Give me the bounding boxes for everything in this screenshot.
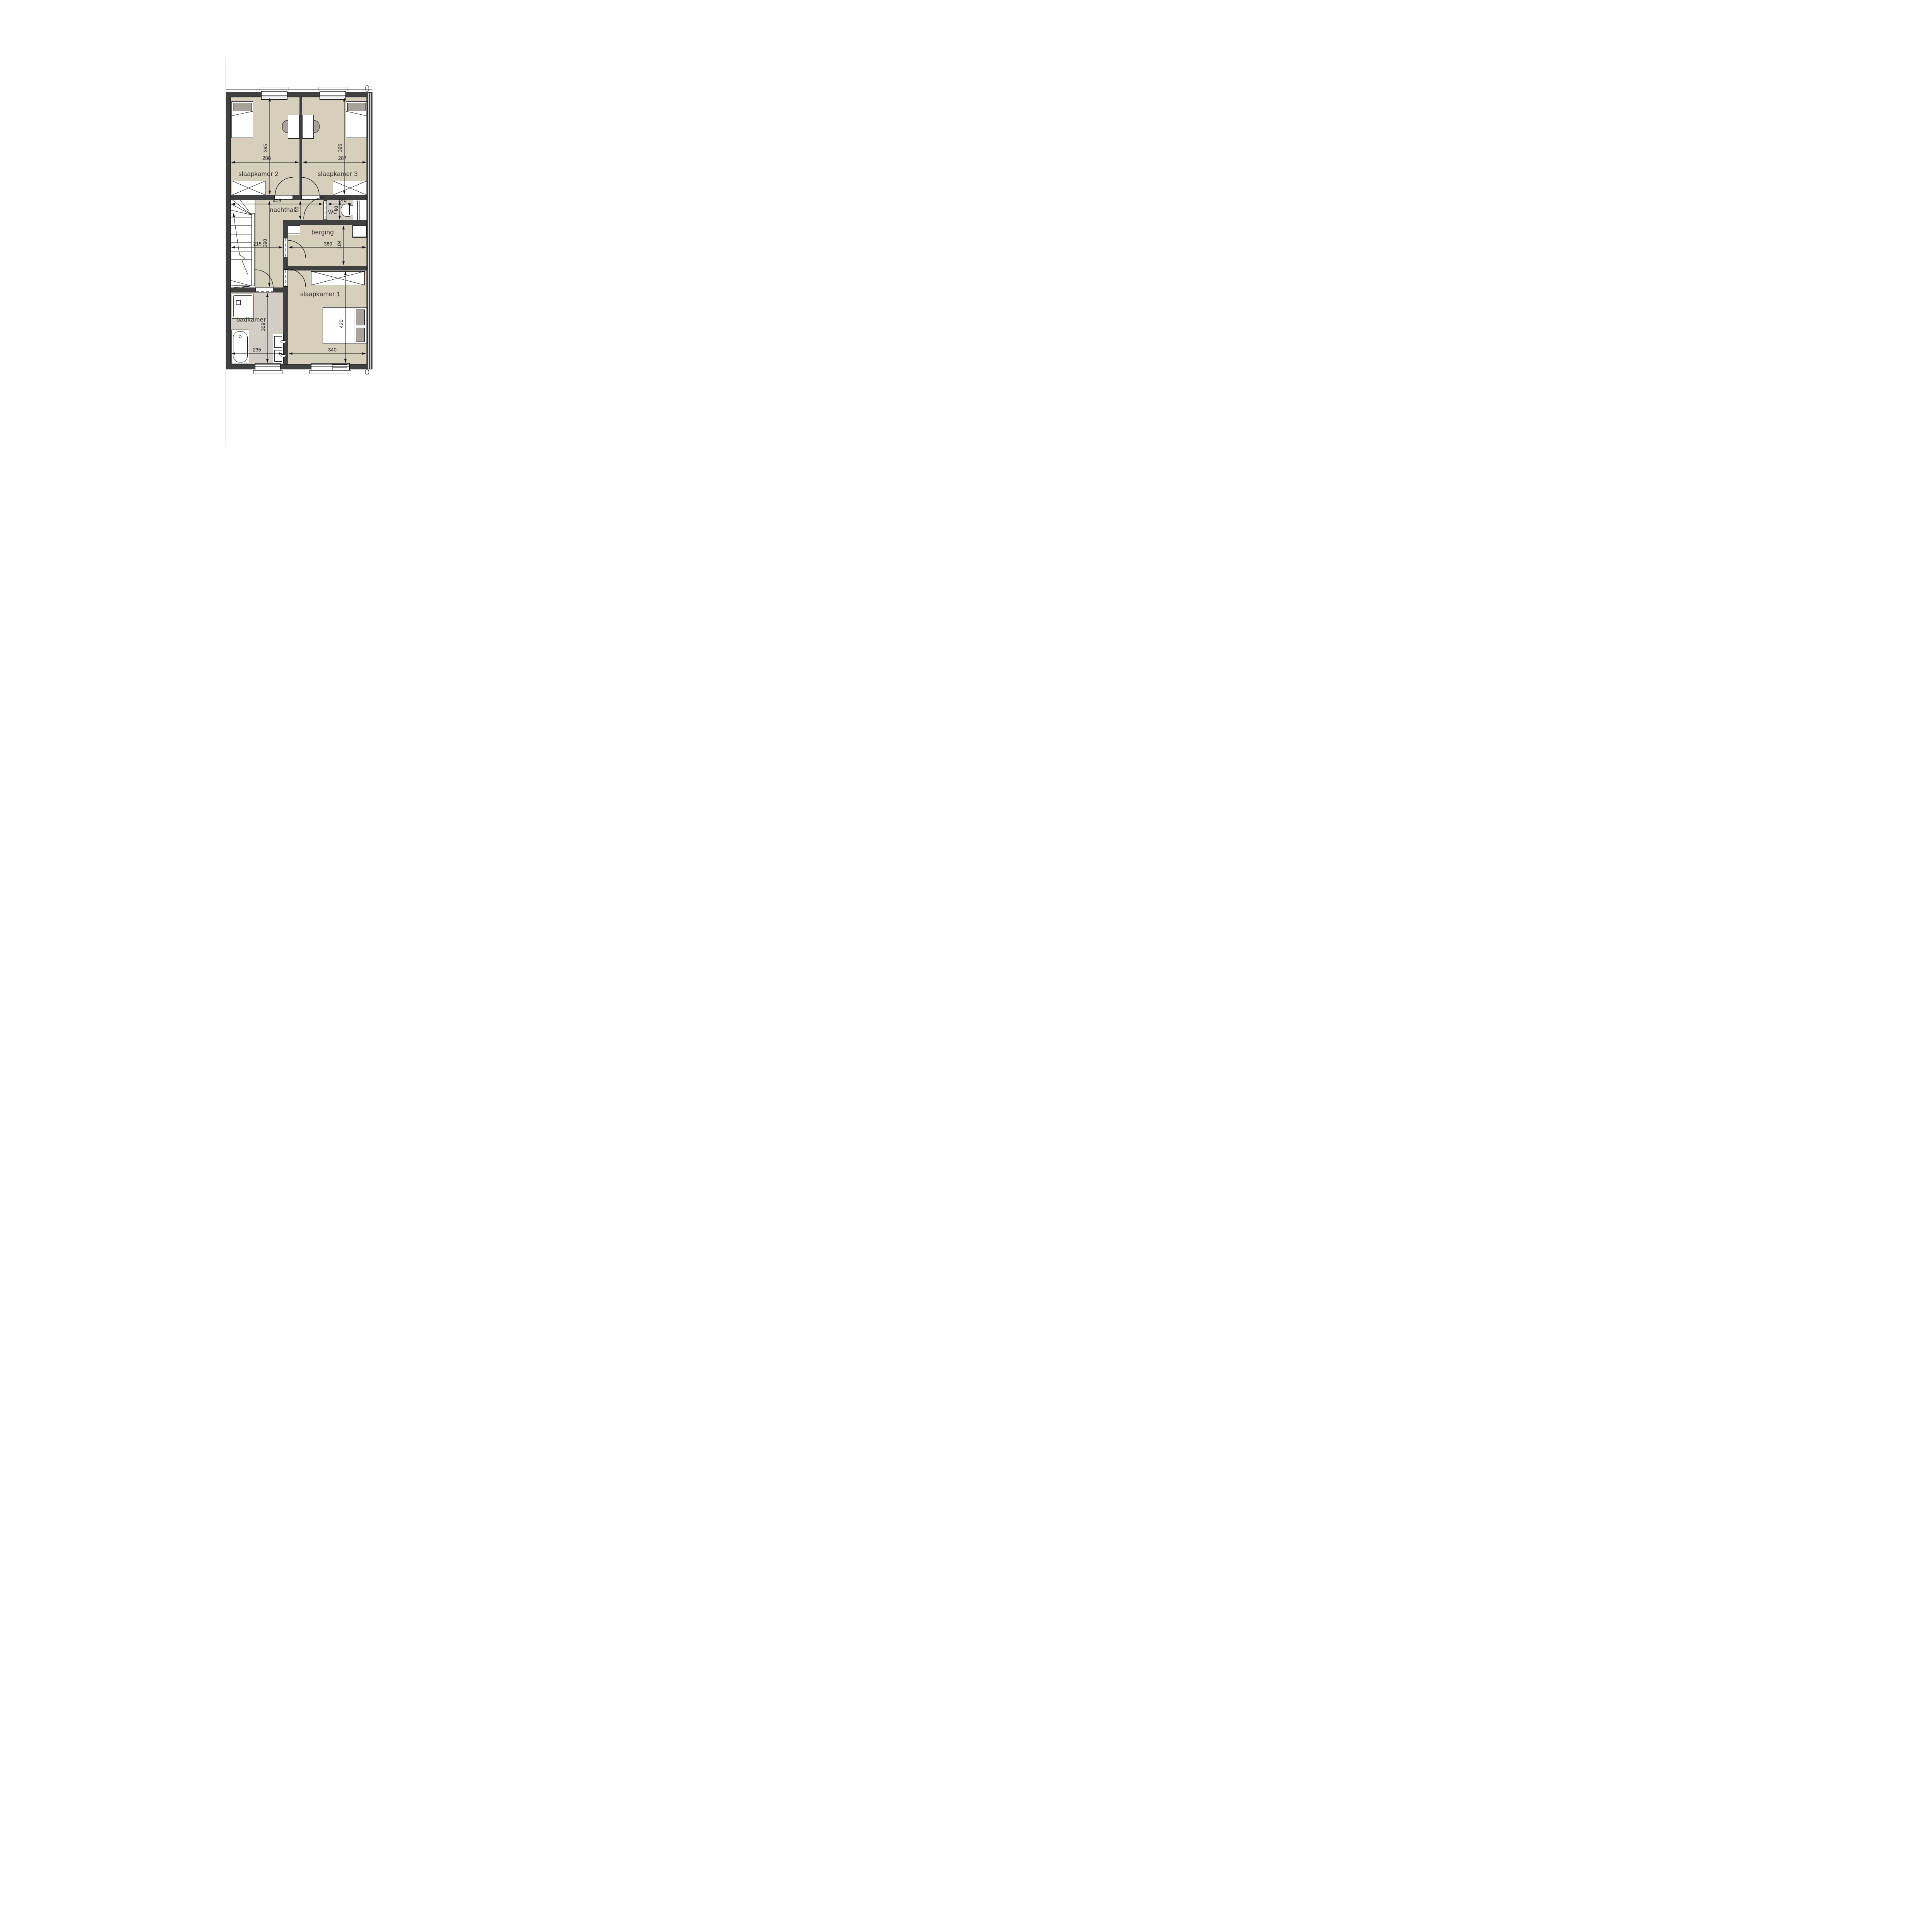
- label-slaapkamer2: slaapkamer 2: [238, 171, 279, 178]
- dim-wc-width: 140: [338, 197, 347, 203]
- door-arc-badkamer: [255, 270, 273, 287]
- dim-berging-width: 360: [324, 241, 332, 247]
- reference-marker-top: [366, 86, 369, 92]
- dim-badkamer-depth: 309: [260, 323, 266, 331]
- door-arc-slaapkamer1: [288, 269, 306, 287]
- label-slaapkamer1: slaapkamer 1: [300, 291, 340, 298]
- dim-slaapkamer3-depth: 395: [337, 144, 343, 152]
- door-arc-berging: [288, 240, 306, 258]
- door-arc-slaapkamer2: [275, 177, 293, 195]
- door-arc-slaapkamer3: [301, 177, 319, 195]
- staircase: [231, 200, 255, 287]
- dim-berging-depth: 184: [337, 240, 342, 249]
- dim-slaapkamer1-width: 340: [328, 347, 337, 353]
- dim-nachthal-depth: 390: [262, 239, 268, 247]
- stair-direction-arrow: [233, 213, 248, 274]
- label-slaapkamer3: slaapkamer 3: [318, 171, 358, 178]
- dim-slaapkamer1-depth: 420: [338, 320, 344, 328]
- wall-inner-outline: [231, 97, 367, 364]
- dim-stair-width: 215: [253, 241, 262, 247]
- linework-overlay: [0, 0, 597, 446]
- dim-slaapkamer2-width: 288: [262, 155, 271, 161]
- floor-plan: slaapkamer 2 slaapkamer 3 nachthal WC be…: [0, 0, 597, 446]
- dim-slaapkamer3-width: 287: [338, 155, 347, 161]
- dim-wc-depth: 90: [333, 206, 339, 211]
- label-nachthal: nachthal: [270, 207, 295, 214]
- dim-nachthal-width: 90: [294, 207, 300, 212]
- dim-nachthal-length: 405: [273, 198, 281, 204]
- reference-marker-bottom: [366, 369, 369, 375]
- dim-badkamer-width: 235: [253, 347, 261, 353]
- label-berging: berging: [311, 229, 334, 236]
- door-arc-wc: [304, 197, 325, 219]
- dim-slaapkamer2-depth: 395: [263, 144, 269, 152]
